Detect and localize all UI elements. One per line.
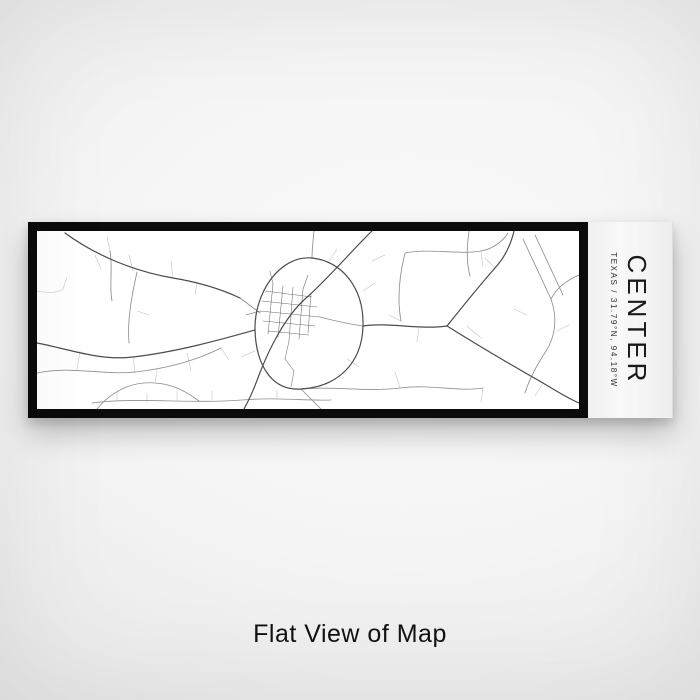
map-subtitle: TEXAS / 31.79°N, 94.18°W xyxy=(610,252,618,388)
map-frame xyxy=(28,222,588,418)
map-title: CENTER xyxy=(625,255,651,386)
title-panel: CENTER TEXAS / 31.79°N, 94.18°W xyxy=(588,222,673,418)
map-roads-svg xyxy=(37,231,579,409)
caption-text: Flat View of Map xyxy=(0,620,700,649)
product-photo: CENTER TEXAS / 31.79°N, 94.18°W Flat Vie… xyxy=(0,0,700,700)
map-print: CENTER TEXAS / 31.79°N, 94.18°W xyxy=(28,222,673,418)
rotated-title-block: CENTER TEXAS / 31.79°N, 94.18°W xyxy=(588,222,672,418)
